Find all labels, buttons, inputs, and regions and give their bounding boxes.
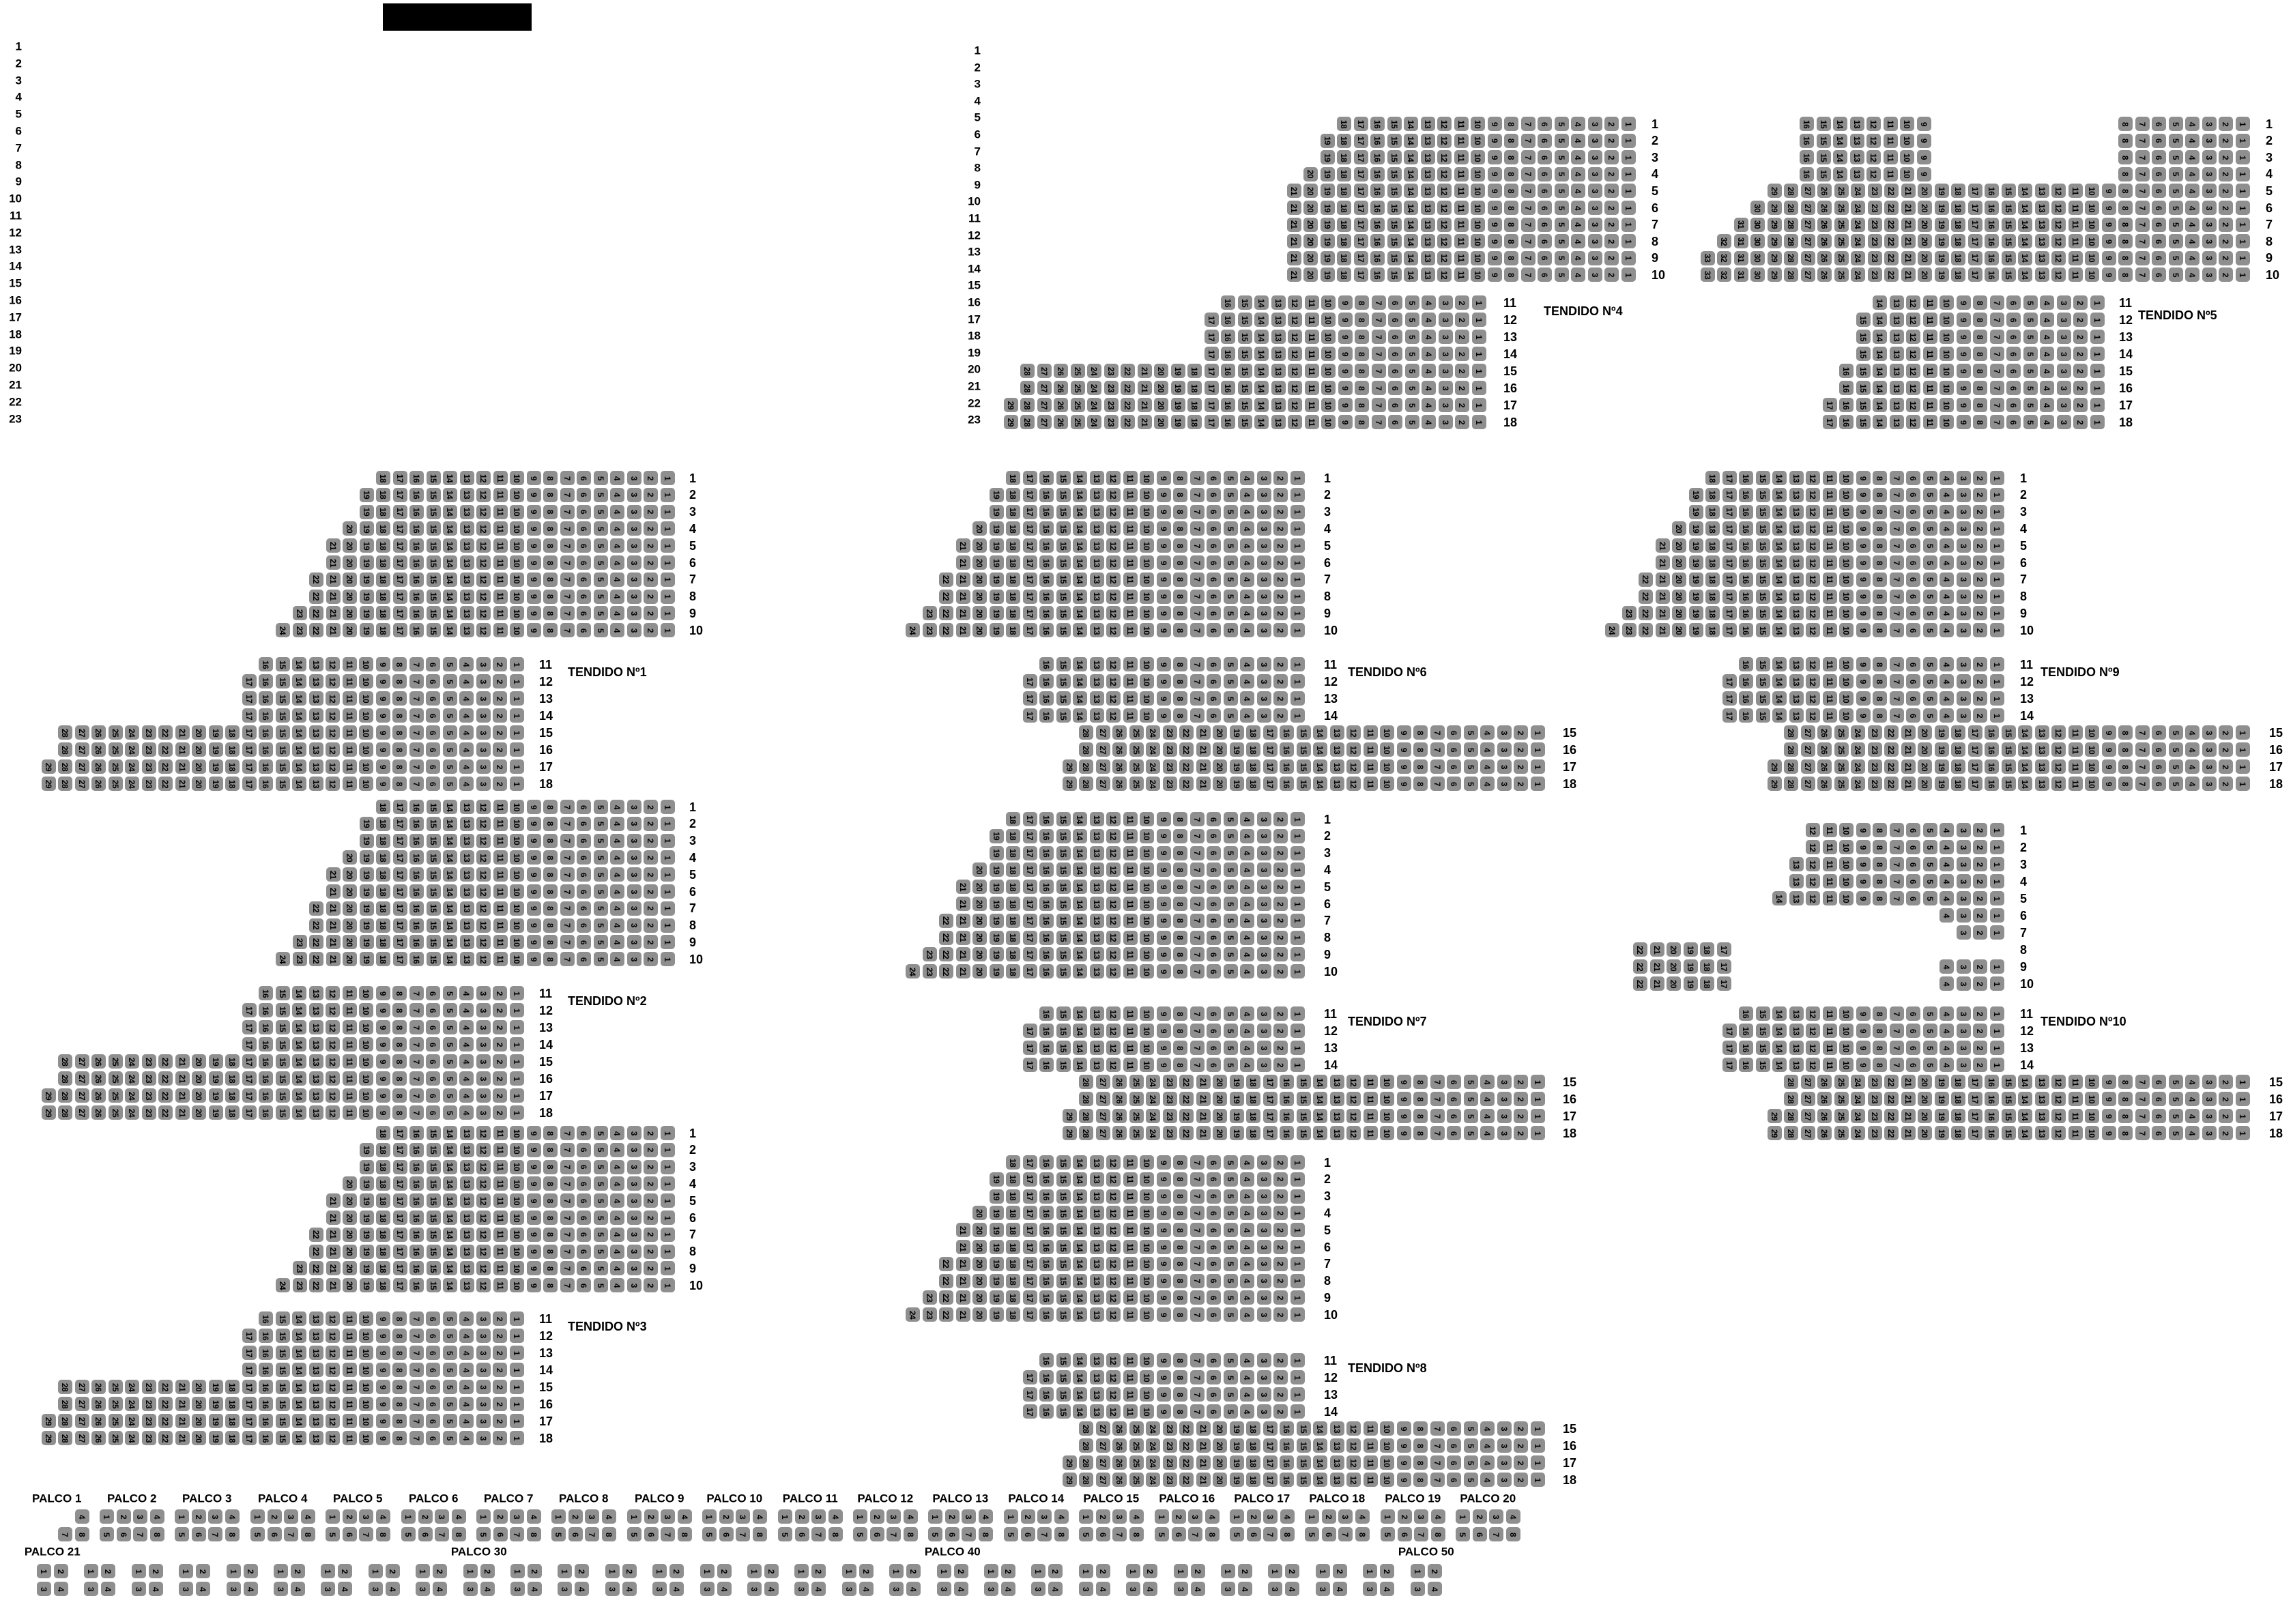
seat[interactable]: 20	[972, 521, 987, 536]
seat[interactable]: 6	[1207, 572, 1221, 587]
seat[interactable]: 19	[360, 952, 374, 966]
seat[interactable]: 18	[376, 918, 390, 933]
seat[interactable]: 9	[527, 1278, 541, 1292]
seat[interactable]: 11	[343, 1363, 357, 1377]
seat[interactable]: 2	[644, 1126, 658, 1140]
seat[interactable]: 17	[1023, 555, 1037, 570]
seat[interactable]: 4	[2185, 267, 2200, 282]
seat[interactable]: 15	[2002, 184, 2016, 198]
seat[interactable]: 19	[360, 834, 374, 848]
seat[interactable]: 5	[594, 817, 608, 831]
seat[interactable]: 13	[1090, 674, 1104, 688]
seat[interactable]: 18	[1246, 777, 1260, 791]
seat[interactable]: 14	[1073, 708, 1087, 723]
seat[interactable]: 6	[426, 725, 440, 740]
seat[interactable]: 12	[1288, 381, 1302, 395]
seat[interactable]: 10	[510, 901, 524, 916]
seat[interactable]: 29	[1768, 234, 1782, 248]
seat[interactable]: 29	[1768, 251, 1782, 265]
seat[interactable]: 16	[1800, 117, 1814, 131]
seat[interactable]: 10	[510, 1210, 524, 1225]
seat[interactable]: 22	[158, 1054, 173, 1069]
seat[interactable]: 19	[360, 1210, 374, 1225]
seat[interactable]: 2	[1273, 606, 1288, 620]
seat[interactable]: 6	[1538, 184, 1552, 198]
seat[interactable]: 3	[1257, 829, 1271, 843]
seat[interactable]: 3	[627, 935, 641, 949]
seat[interactable]: 6	[577, 884, 591, 899]
seat[interactable]: 4	[2185, 201, 2200, 215]
seat[interactable]: 6	[1207, 691, 1221, 706]
seat[interactable]: 11	[1364, 759, 1378, 774]
seat[interactable]: 9	[1488, 117, 1502, 131]
seat[interactable]: 2	[644, 1278, 658, 1292]
seat[interactable]: 4	[459, 1431, 474, 1445]
seat[interactable]: 14	[443, 1228, 457, 1242]
seat[interactable]: 9	[376, 657, 390, 671]
seat[interactable]: 10	[1140, 572, 1154, 587]
seat[interactable]: 3	[1439, 347, 1453, 361]
seat[interactable]: 8	[543, 555, 558, 570]
seat[interactable]: 1	[2236, 134, 2250, 148]
seat[interactable]: 15	[1056, 862, 1071, 877]
seat[interactable]: 26	[91, 1431, 106, 1445]
seat[interactable]: 20	[1918, 234, 1932, 248]
seat[interactable]: 6	[577, 918, 591, 933]
seat[interactable]: 18	[376, 901, 390, 916]
seat[interactable]: 8	[543, 1126, 558, 1140]
seat[interactable]: 29	[42, 1088, 56, 1103]
seat[interactable]: 25	[1071, 415, 1085, 429]
seat[interactable]: 3	[476, 986, 491, 1000]
seat[interactable]: 19	[1321, 184, 1335, 198]
seat[interactable]: 27	[75, 725, 89, 740]
seat[interactable]: 6	[1388, 381, 1402, 395]
seat[interactable]: 12	[1437, 117, 1452, 131]
seat[interactable]: 16	[409, 606, 424, 620]
seat[interactable]: 14	[1404, 184, 1418, 198]
seat[interactable]: 14	[443, 488, 457, 502]
seat[interactable]: 17	[1205, 415, 1219, 429]
seat[interactable]: 24	[1851, 234, 1865, 248]
seat[interactable]: 1	[1290, 862, 1305, 877]
seat[interactable]: 10	[359, 1329, 373, 1343]
seat[interactable]: 12	[326, 1054, 340, 1069]
seat[interactable]: 1	[510, 1380, 524, 1394]
seat[interactable]: 9	[527, 1126, 541, 1140]
seat[interactable]: 29	[42, 1414, 56, 1428]
seat[interactable]: 9	[1157, 572, 1171, 587]
seat[interactable]: 4	[610, 572, 624, 587]
seat[interactable]: 13	[1421, 218, 1435, 232]
seat[interactable]: 4	[2185, 218, 2200, 232]
seat[interactable]: 27	[1801, 184, 1815, 198]
seat[interactable]: 29	[42, 759, 56, 774]
seat[interactable]: 7	[409, 657, 424, 671]
seat[interactable]: 15	[427, 952, 441, 966]
seat[interactable]: 5	[443, 1003, 457, 1017]
seat[interactable]: 17	[1823, 415, 1837, 429]
seat[interactable]: 9	[376, 1088, 390, 1103]
seat[interactable]: 11	[493, 555, 508, 570]
seat[interactable]: 7	[560, 1126, 575, 1140]
seat[interactable]: 11	[343, 742, 357, 757]
seat[interactable]: 22	[1884, 218, 1899, 232]
seat[interactable]: 25	[1071, 381, 1085, 395]
seat[interactable]: 14	[292, 1380, 306, 1394]
seat[interactable]: 5	[594, 505, 608, 519]
seat[interactable]: 1	[2236, 267, 2250, 282]
seat[interactable]: 1	[510, 986, 524, 1000]
seat[interactable]: 17	[242, 1003, 257, 1017]
seat[interactable]: 6	[2152, 234, 2166, 248]
seat[interactable]: 2	[1514, 777, 1528, 791]
seat[interactable]: 16	[1839, 381, 1854, 395]
seat[interactable]: 2	[493, 1363, 507, 1377]
seat[interactable]: 21	[326, 1245, 341, 1259]
seat[interactable]: 7	[409, 1020, 424, 1034]
seat[interactable]: 13	[460, 952, 474, 966]
seat[interactable]: 21	[175, 759, 190, 774]
seat[interactable]: 6	[1207, 505, 1221, 519]
seat[interactable]: 10	[1140, 880, 1154, 894]
seat[interactable]: 5	[1555, 167, 1569, 182]
seat[interactable]: 16	[409, 471, 424, 485]
seat[interactable]: 10	[1380, 742, 1394, 757]
seat[interactable]: 14	[1073, 674, 1087, 688]
seat[interactable]: 11	[2068, 184, 2083, 198]
seat[interactable]: 11	[493, 918, 508, 933]
seat[interactable]: 16	[1370, 201, 1385, 215]
seat[interactable]: 16	[259, 691, 273, 706]
seat[interactable]: 21	[1901, 184, 1916, 198]
seat[interactable]: 10	[510, 952, 524, 966]
seat[interactable]: 25	[1129, 742, 1144, 757]
seat[interactable]: 7	[1990, 313, 2004, 327]
seat[interactable]: 15	[427, 488, 441, 502]
seat[interactable]: 6	[1388, 415, 1402, 429]
seat[interactable]: 9	[1157, 505, 1171, 519]
seat[interactable]: 19	[1230, 759, 1244, 774]
seat[interactable]: 22	[939, 590, 953, 604]
seat[interactable]: 12	[326, 1329, 340, 1343]
seat[interactable]: 6	[1207, 555, 1221, 570]
seat[interactable]: 8	[543, 850, 558, 865]
seat[interactable]: 9	[527, 800, 541, 814]
seat[interactable]: 26	[1112, 777, 1127, 791]
seat[interactable]: 16	[259, 1037, 273, 1052]
seat[interactable]: 27	[75, 777, 89, 791]
seat[interactable]: 11	[1884, 167, 1898, 182]
seat[interactable]: 13	[1890, 381, 1904, 395]
seat[interactable]: 15	[1056, 829, 1071, 843]
seat[interactable]: 19	[360, 884, 374, 899]
seat[interactable]: 12	[1106, 657, 1121, 671]
seat[interactable]: 15	[276, 986, 290, 1000]
seat[interactable]: 4	[610, 1278, 624, 1292]
seat[interactable]: 6	[2006, 381, 2021, 395]
seat[interactable]: 25	[1129, 725, 1144, 740]
seat[interactable]: 10	[359, 1071, 373, 1086]
seat[interactable]: 18	[1006, 829, 1020, 843]
seat[interactable]: 28	[58, 1431, 72, 1445]
seat[interactable]: 8	[2118, 184, 2133, 198]
seat[interactable]: 3	[1588, 150, 1602, 164]
seat[interactable]: 20	[343, 1245, 357, 1259]
seat[interactable]: 4	[459, 674, 474, 688]
seat[interactable]: 12	[476, 1143, 491, 1157]
seat[interactable]: 4	[1422, 415, 1436, 429]
seat[interactable]: 6	[426, 759, 440, 774]
seat[interactable]: 16	[409, 555, 424, 570]
seat[interactable]: 22	[309, 1228, 323, 1242]
seat[interactable]: 19	[1321, 251, 1335, 265]
seat[interactable]: 3	[1439, 364, 1453, 378]
seat[interactable]: 12	[1106, 606, 1121, 620]
seat[interactable]: 18	[1187, 398, 1202, 412]
seat[interactable]: 2	[644, 850, 658, 865]
seat[interactable]: 16	[1039, 606, 1054, 620]
seat[interactable]: 29	[1063, 777, 1077, 791]
seat[interactable]: 24	[125, 1088, 139, 1103]
seat[interactable]: 15	[427, 1245, 441, 1259]
seat[interactable]: 15	[427, 1176, 441, 1191]
seat[interactable]: 12	[476, 918, 491, 933]
seat[interactable]: 17	[1354, 184, 1368, 198]
seat[interactable]: 8	[543, 538, 558, 553]
seat[interactable]: 15	[427, 918, 441, 933]
seat[interactable]: 7	[560, 918, 575, 933]
seat[interactable]: 10	[510, 590, 524, 604]
seat[interactable]: 23	[293, 1261, 307, 1275]
seat[interactable]: 2	[1514, 742, 1528, 757]
seat[interactable]: 6	[426, 986, 440, 1000]
seat[interactable]: 4	[459, 1037, 474, 1052]
seat[interactable]: 11	[1923, 295, 1937, 310]
seat[interactable]: 13	[460, 606, 474, 620]
seat[interactable]: 2	[1455, 295, 1469, 310]
seat[interactable]: 23	[923, 606, 937, 620]
seat[interactable]: 9	[527, 901, 541, 916]
seat[interactable]: 15	[427, 1261, 441, 1275]
seat[interactable]: 5	[594, 1126, 608, 1140]
seat[interactable]: 5	[443, 1071, 457, 1086]
seat[interactable]: 16	[1039, 538, 1054, 553]
seat[interactable]: 22	[158, 1397, 173, 1411]
seat[interactable]: 12	[1906, 398, 1920, 412]
seat[interactable]: 10	[510, 505, 524, 519]
seat[interactable]: 12	[476, 1228, 491, 1242]
seat[interactable]: 9	[2102, 267, 2116, 282]
seat[interactable]: 23	[1868, 184, 1882, 198]
seat[interactable]: 16	[259, 1071, 273, 1086]
seat[interactable]: 6	[1207, 862, 1221, 877]
seat[interactable]: 17	[242, 1380, 257, 1394]
seat[interactable]: 21	[326, 572, 341, 587]
seat[interactable]: 5	[2169, 134, 2183, 148]
seat[interactable]: 25	[1834, 201, 1849, 215]
seat[interactable]: 11	[343, 1003, 357, 1017]
seat[interactable]: 3	[2202, 134, 2217, 148]
seat[interactable]: 14	[292, 1329, 306, 1343]
seat[interactable]: 13	[460, 505, 474, 519]
seat[interactable]: 21	[326, 555, 341, 570]
seat[interactable]: 5	[1224, 674, 1238, 688]
seat[interactable]: 13	[309, 1363, 323, 1377]
seat[interactable]: 2	[1514, 759, 1528, 774]
seat[interactable]: 11	[2068, 201, 2083, 215]
seat[interactable]: 14	[443, 1210, 457, 1225]
seat[interactable]: 11	[343, 1397, 357, 1411]
seat[interactable]: 10	[510, 850, 524, 865]
seat[interactable]: 17	[1023, 846, 1037, 860]
seat[interactable]: 12	[326, 1346, 340, 1360]
seat[interactable]: 5	[594, 1176, 608, 1191]
seat[interactable]: 28	[1784, 201, 1798, 215]
seat[interactable]: 16	[1221, 347, 1235, 361]
seat[interactable]: 13	[460, 884, 474, 899]
seat[interactable]: 7	[1430, 777, 1445, 791]
seat[interactable]: 5	[443, 1363, 457, 1377]
seat[interactable]: 19	[990, 555, 1004, 570]
seat[interactable]: 18	[1337, 150, 1351, 164]
seat[interactable]: 26	[91, 1414, 106, 1428]
seat[interactable]: 32	[1717, 234, 1731, 248]
seat[interactable]: 24	[1851, 267, 1865, 282]
seat[interactable]: 20	[972, 880, 987, 894]
seat[interactable]: 8	[1173, 471, 1187, 485]
seat[interactable]: 20	[192, 759, 206, 774]
seat[interactable]: 14	[292, 708, 306, 723]
seat[interactable]: 3	[476, 725, 491, 740]
seat[interactable]: 22	[1884, 184, 1899, 198]
seat[interactable]: 19	[360, 1245, 374, 1259]
seat[interactable]: 5	[1555, 234, 1569, 248]
seat[interactable]: 26	[91, 725, 106, 740]
seat[interactable]: 29	[1004, 415, 1018, 429]
seat[interactable]: 1	[1621, 184, 1636, 198]
seat[interactable]: 18	[1246, 759, 1260, 774]
seat[interactable]: 8	[392, 1363, 407, 1377]
seat[interactable]: 8	[392, 1414, 407, 1428]
seat[interactable]: 18	[225, 759, 240, 774]
seat[interactable]: 13	[1271, 313, 1286, 327]
seat[interactable]: 11	[1923, 330, 1937, 344]
seat[interactable]: 10	[1939, 347, 1954, 361]
seat[interactable]: 1	[661, 817, 675, 831]
seat[interactable]: 16	[409, 800, 424, 814]
seat[interactable]: 11	[493, 1176, 508, 1191]
seat[interactable]: 4	[610, 1126, 624, 1140]
seat[interactable]: 13	[460, 555, 474, 570]
seat[interactable]: 8	[1173, 623, 1187, 637]
seat[interactable]: 20	[192, 1431, 206, 1445]
seat[interactable]: 15	[427, 471, 441, 485]
seat[interactable]: 10	[1140, 812, 1154, 826]
seat[interactable]: 9	[376, 1311, 390, 1326]
seat[interactable]: 13	[460, 1126, 474, 1140]
seat[interactable]: 2	[644, 538, 658, 553]
seat[interactable]: 3	[476, 1003, 491, 1017]
seat[interactable]: 18	[376, 555, 390, 570]
seat[interactable]: 21	[1901, 234, 1916, 248]
seat[interactable]: 3	[1257, 880, 1271, 894]
seat[interactable]: 8	[543, 488, 558, 502]
seat[interactable]: 1	[661, 800, 675, 814]
seat[interactable]: 13	[1421, 150, 1435, 164]
seat[interactable]: 19	[360, 555, 374, 570]
seat[interactable]: 10	[510, 1193, 524, 1208]
seat[interactable]: 12	[1106, 471, 1121, 485]
seat[interactable]: 17	[393, 1193, 407, 1208]
seat[interactable]: 7	[560, 488, 575, 502]
seat[interactable]: 14	[1073, 505, 1087, 519]
seat[interactable]: 16	[1039, 488, 1054, 502]
seat[interactable]: 3	[476, 708, 491, 723]
seat[interactable]: 4	[2185, 184, 2200, 198]
seat[interactable]: 10	[510, 918, 524, 933]
seat[interactable]: 20	[1213, 725, 1227, 740]
seat[interactable]: 2	[2219, 234, 2233, 248]
seat[interactable]: 14	[1313, 759, 1327, 774]
seat[interactable]: 13	[460, 834, 474, 848]
seat[interactable]: 19	[1321, 167, 1335, 182]
seat[interactable]: 6	[1538, 117, 1552, 131]
seat[interactable]: 15	[1387, 218, 1402, 232]
seat[interactable]: 14	[1404, 134, 1418, 148]
seat[interactable]: 7	[1990, 415, 2004, 429]
seat[interactable]: 27	[1037, 415, 1052, 429]
seat[interactable]: 16	[409, 1228, 424, 1242]
seat[interactable]: 11	[493, 1160, 508, 1174]
seat[interactable]: 4	[2040, 381, 2054, 395]
seat[interactable]: 9	[376, 1037, 390, 1052]
seat[interactable]: 12	[1346, 777, 1361, 791]
seat[interactable]: 15	[1387, 234, 1402, 248]
seat[interactable]: 20	[1918, 201, 1932, 215]
seat[interactable]: 16	[1039, 880, 1054, 894]
seat[interactable]: 9	[1157, 674, 1171, 688]
seat[interactable]: 17	[242, 1020, 257, 1034]
seat[interactable]: 24	[125, 1397, 139, 1411]
seat[interactable]: 9	[376, 1431, 390, 1445]
seat[interactable]: 14	[292, 1054, 306, 1069]
seat[interactable]: 14	[1404, 267, 1418, 282]
seat[interactable]: 10	[359, 759, 373, 774]
seat[interactable]: 19	[1321, 234, 1335, 248]
seat[interactable]: 3	[2202, 167, 2217, 182]
seat[interactable]: 14	[1404, 234, 1418, 248]
seat[interactable]: 1	[661, 867, 675, 882]
seat[interactable]: 1	[1290, 691, 1305, 706]
seat[interactable]: 13	[1271, 347, 1286, 361]
seat[interactable]: 5	[1224, 606, 1238, 620]
seat[interactable]: 1	[510, 1311, 524, 1326]
seat[interactable]: 16	[1370, 218, 1385, 232]
seat[interactable]: 4	[2185, 117, 2200, 131]
seat[interactable]: 3	[627, 817, 641, 831]
seat[interactable]: 23	[1163, 725, 1177, 740]
seat[interactable]: 4	[1422, 364, 1436, 378]
seat[interactable]: 13	[1850, 150, 1864, 164]
seat[interactable]: 24	[276, 1278, 290, 1292]
seat[interactable]: 15	[1856, 415, 1871, 429]
seat[interactable]: 12	[1106, 538, 1121, 553]
seat[interactable]: 7	[1990, 398, 2004, 412]
seat[interactable]: 11	[493, 817, 508, 831]
seat[interactable]: 17	[242, 742, 257, 757]
seat[interactable]: 1	[1290, 829, 1305, 843]
